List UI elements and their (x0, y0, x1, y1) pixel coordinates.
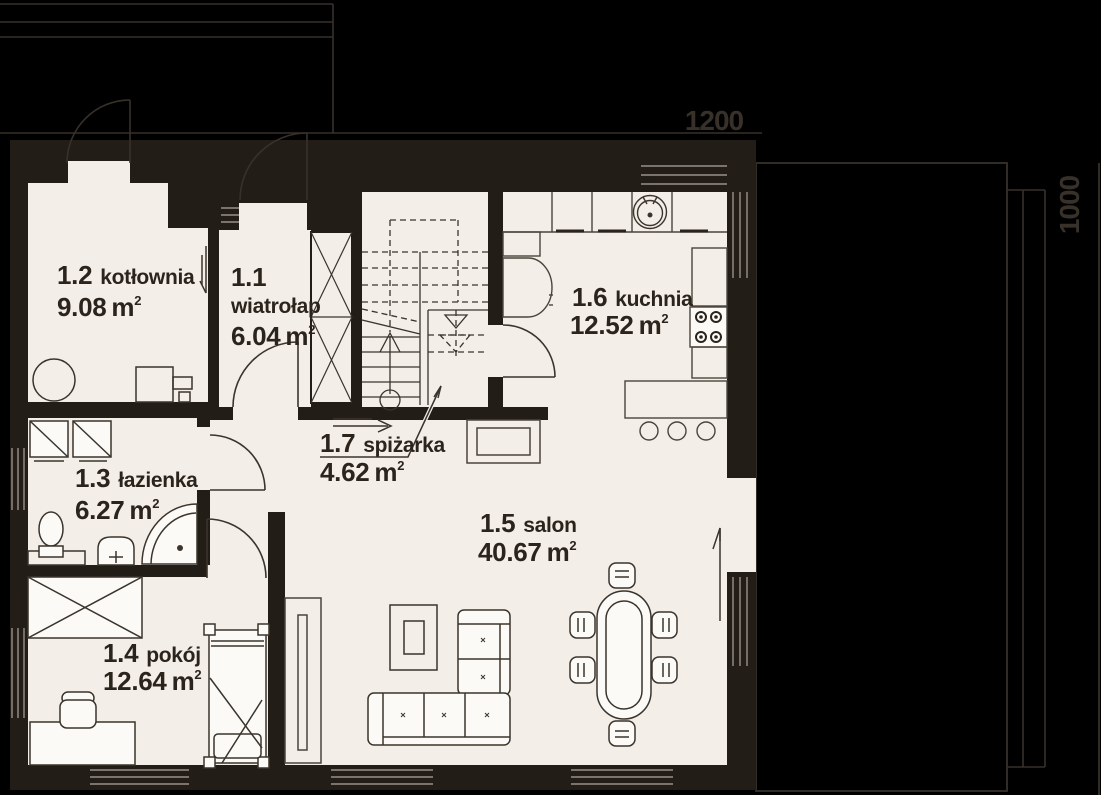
bed-icon (204, 624, 269, 768)
terrace-door-opening (727, 478, 756, 572)
dimension-right-lines (1007, 190, 1045, 767)
label-salon-area: 40.67m2 (478, 537, 576, 567)
terrace-outline (756, 163, 1099, 795)
chair-icon (60, 692, 96, 728)
label-wiatrolap-number: 1.1 (231, 262, 266, 292)
tv-sideboard (285, 598, 321, 763)
label-wiatrolap-name: wiatrołap (230, 295, 320, 318)
doorway-wiatrolap-hall (233, 405, 298, 422)
doorway-pokoj (207, 565, 268, 577)
floor-plan-svg: 1.1 wiatrołap 6.04m2 1.2kotłownia 9.08m2… (0, 0, 1101, 795)
stairwell-floor (362, 192, 488, 407)
doorway-spizarka-kuchnia (488, 325, 503, 377)
porch-outline (0, 4, 333, 133)
label-wiatrolap-area: 6.04m2 (231, 321, 315, 351)
dimension-right-label: 1000 (1054, 175, 1085, 234)
label-pokoj-area: 12.64m2 (103, 666, 201, 696)
sink-icon (98, 537, 134, 565)
toilet-icon (39, 512, 63, 557)
stove-icon (690, 307, 727, 347)
label-lazienka-area: 6.27m2 (75, 495, 159, 525)
fireplace-icon (467, 420, 540, 463)
washer-icon-2 (73, 421, 111, 461)
washer-icon (30, 421, 68, 461)
label-kuchnia-area: 12.52m2 (570, 310, 668, 340)
label-kotlownia-area: 9.08m2 (57, 292, 141, 322)
dimension-top-label: 1200 (685, 105, 744, 136)
wardrobe-icon (28, 577, 142, 638)
floor-plan-canvas: 1.1 wiatrołap 6.04m2 1.2kotłownia 9.08m2… (0, 0, 1101, 795)
label-spizarka-area: 4.62m2 (320, 457, 404, 487)
doorway-lazienka (197, 427, 210, 490)
dining-table-icon (597, 591, 651, 719)
